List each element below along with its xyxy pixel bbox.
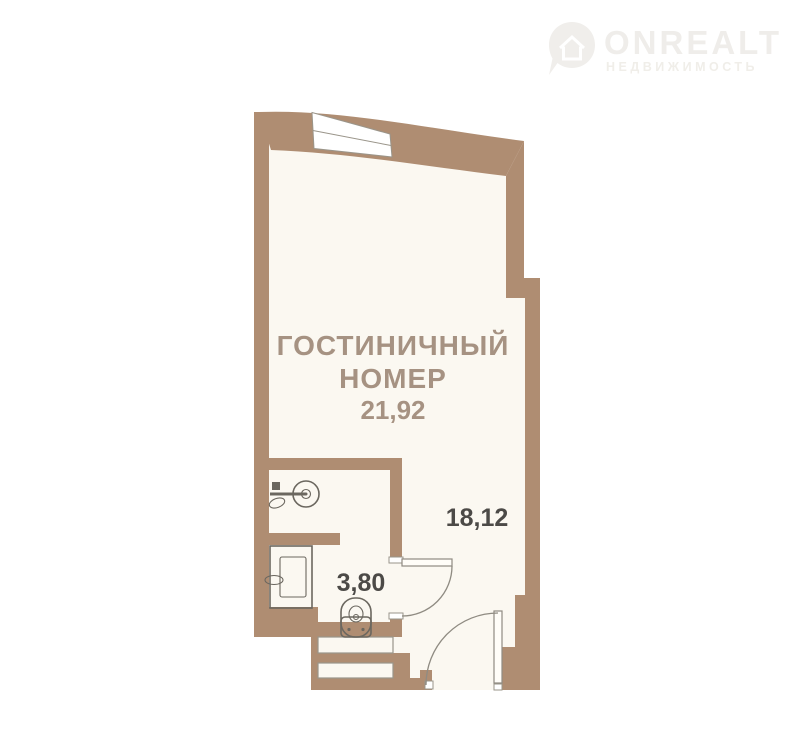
- bathroom-door-jamb-bottom: [389, 613, 403, 619]
- wall-left: [254, 112, 269, 637]
- main-room-area-label: 18,12: [446, 504, 509, 532]
- bathroom-area-label: 3,80: [337, 569, 386, 597]
- wall-bottom-band: [311, 678, 420, 690]
- wall-bathroom-right: [390, 462, 402, 558]
- washbasin-drain-dot: [305, 493, 308, 496]
- bathroom-door-leaf: [402, 559, 452, 566]
- onrealt-pin-house-icon: [549, 22, 595, 75]
- bathroom-door-jamb-top: [389, 557, 403, 563]
- washbasin-wall-bracket: [272, 482, 280, 490]
- room-name-line2: НОМЕР: [339, 363, 447, 394]
- entrance-door-jamb-right: [494, 684, 502, 690]
- watermark-logo: ONREALT НЕДВИЖИМОСТЬ: [549, 22, 782, 75]
- wall-bathroom-top: [268, 458, 402, 470]
- toilet-bolt-right: [361, 628, 364, 631]
- watermark-brand-text: ONREALT: [604, 24, 782, 61]
- step-upper: [318, 637, 393, 653]
- entrance-door-leaf: [494, 611, 502, 683]
- floor-plan-page: ONREALT НЕДВИЖИМОСТЬ: [0, 0, 800, 750]
- watermark-subtitle-text: НЕДВИЖИМОСТЬ: [606, 60, 758, 74]
- toilet-bolt-left: [347, 628, 350, 631]
- room-total-area-label: 21,92: [360, 395, 425, 425]
- room-name-line1: ГОСТИНИЧНЫЙ: [277, 329, 510, 361]
- floor-plan-drawing: ONREALT НЕДВИЖИМОСТЬ: [0, 0, 800, 750]
- step-lower: [318, 663, 393, 678]
- wall-basin-half: [268, 533, 340, 545]
